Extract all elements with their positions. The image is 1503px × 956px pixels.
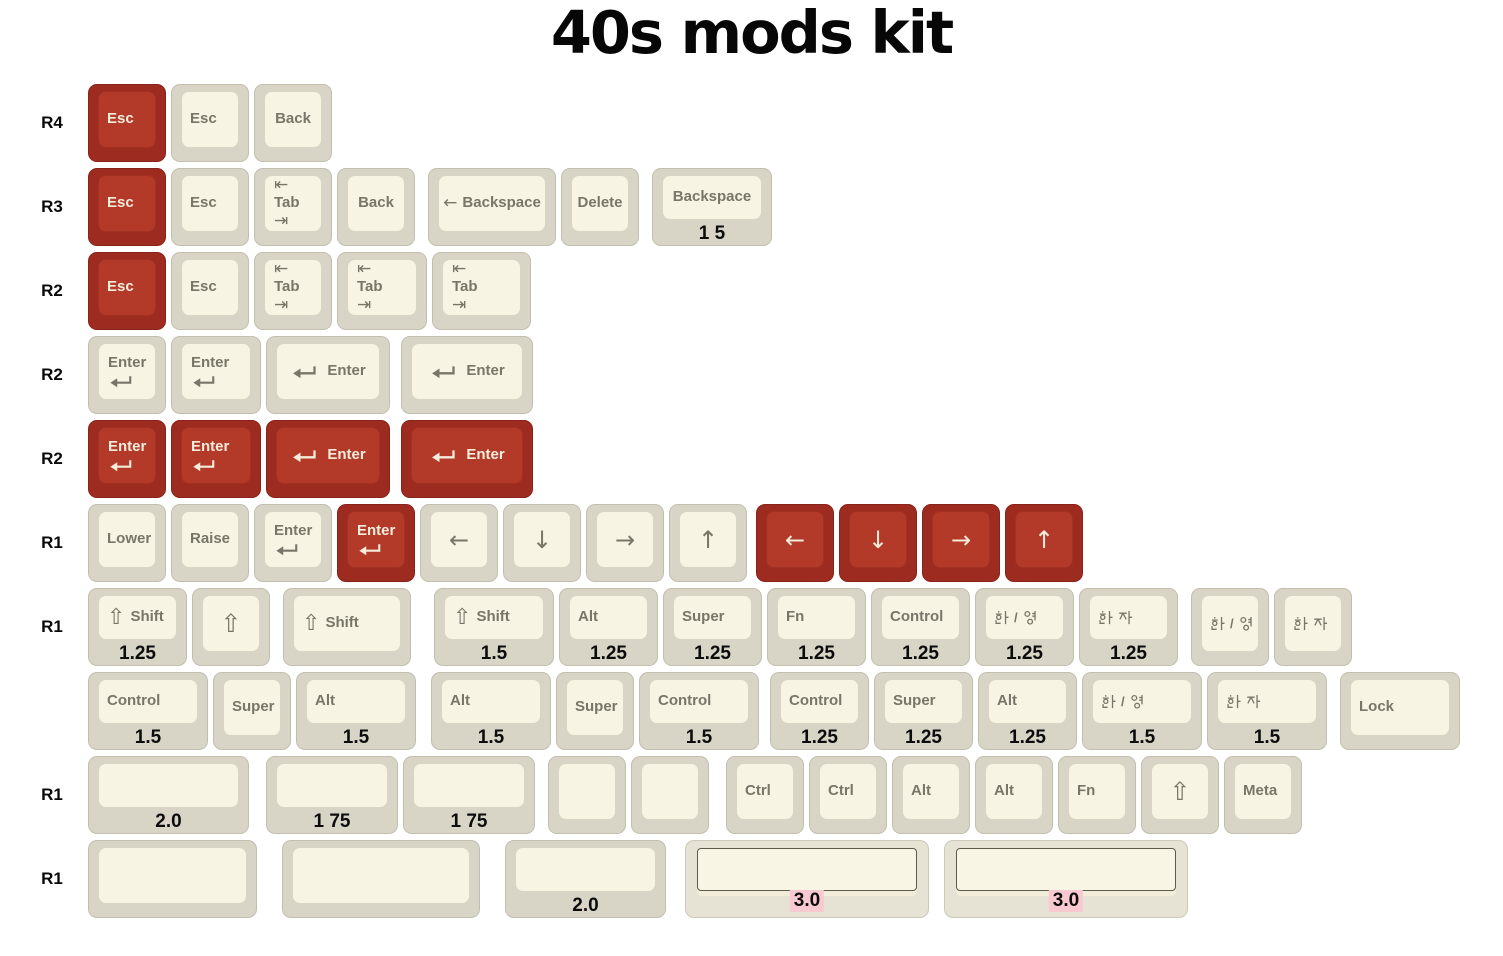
size-label: 3.0: [790, 890, 824, 912]
key-shift: ⇧Shift1.25: [88, 588, 187, 666]
keycap-top: Fn: [1068, 763, 1126, 820]
key-legend: Control: [658, 693, 711, 710]
keycap-top: Enter: [98, 343, 156, 400]
key-legend: Super: [575, 699, 618, 716]
key-legend: Esc: [107, 195, 134, 212]
size-label: 1.25: [89, 643, 186, 665]
key-alt: Alt1.5: [431, 672, 551, 750]
key-legend: Alt: [315, 693, 335, 710]
arrow-up-icon: ↑: [698, 528, 718, 552]
keycap-top: Ctrl: [819, 763, 877, 820]
key-legend: Esc: [190, 195, 217, 212]
keycap-top: ⇧Shift: [293, 595, 401, 652]
size-label: 1 75: [267, 811, 397, 833]
keycap-top: →: [932, 511, 990, 568]
keycap-top: ⇧Shift: [444, 595, 544, 640]
enter-arrow-icon: [191, 375, 216, 388]
row-label: R2: [26, 252, 78, 330]
keycap-top: Meta: [1234, 763, 1292, 820]
row-label: R1: [26, 504, 78, 582]
keycap-top: Super: [884, 679, 963, 724]
key-arrow-up: ↑: [669, 504, 747, 582]
arrow-left-icon: ←: [785, 528, 805, 552]
key-enter: Enter: [337, 504, 415, 582]
size-label: 1.25: [875, 727, 972, 749]
key-han-yeong: /1.25: [975, 588, 1074, 666]
key-legend: Enter: [327, 447, 365, 464]
keycap-top: ⇧Shift: [98, 595, 177, 640]
key-shift: ⇧: [192, 588, 270, 666]
key-legend: Super: [682, 609, 725, 626]
key-legend: Raise: [190, 531, 230, 548]
key-enter: Enter: [171, 336, 261, 414]
key-legend: Backspace: [673, 189, 751, 206]
key-legend: Tab: [357, 279, 383, 296]
shift-icon: ⇧: [221, 611, 242, 636]
key-alt: Alt: [975, 756, 1053, 834]
key-enter: Enter: [266, 420, 390, 498]
key-legend: Super: [893, 693, 936, 710]
keycap-top: ⇤Tab⇥: [442, 259, 521, 316]
hangul-han-glyph: [994, 610, 1009, 625]
key-control: Control1.25: [871, 588, 970, 666]
hangul-yeong-glyph: [1023, 610, 1038, 625]
key-meta: Meta: [1224, 756, 1302, 834]
key-legend: Alt: [911, 783, 931, 800]
hangul-yeong-glyph: [1130, 694, 1145, 709]
keycap-top: [98, 847, 247, 904]
tab-right-icon: ⇥: [274, 297, 288, 314]
key-legend: Backspace: [462, 195, 540, 212]
size-label: 1.5: [432, 727, 550, 749]
key-super: Super1.25: [874, 672, 973, 750]
key-legend: Super: [232, 699, 275, 716]
size-label: 1.25: [1080, 643, 1177, 665]
row-label: R3: [26, 168, 78, 246]
keycap-top: [1217, 679, 1317, 724]
row-label: R1: [26, 756, 78, 834]
enter-arrow-icon: [191, 459, 216, 472]
key-han-yeong: /1.5: [1082, 672, 1202, 750]
keycap-top: ⇤Tab⇥: [264, 175, 322, 232]
keycap-top: [1284, 595, 1342, 652]
key-enter: Enter: [266, 336, 390, 414]
keycap-top: Lower: [98, 511, 156, 568]
keycap-top: /: [985, 595, 1064, 640]
keycap-top: Alt: [985, 763, 1043, 820]
keycap-top: Esc: [181, 91, 239, 148]
size-label: 1 75: [404, 811, 534, 833]
key-legend: Lower: [107, 531, 151, 548]
key-shift: ⇧Shift: [283, 588, 411, 666]
slash-separator: /: [1121, 694, 1125, 709]
key-super: Super: [556, 672, 634, 750]
key-legend: Enter: [191, 439, 229, 456]
keycap-top: Esc: [181, 175, 239, 232]
size-label: 1.25: [768, 643, 865, 665]
key-ctrl: Ctrl: [809, 756, 887, 834]
key-backspace: Backspace1 5: [652, 168, 772, 246]
keycap-top: ↑: [1015, 511, 1073, 568]
key-legend: Esc: [190, 279, 217, 296]
key-shift: ⇧Shift1.5: [434, 588, 554, 666]
keycap-top: [515, 847, 656, 892]
key-esc: Esc: [171, 84, 249, 162]
size-label: 1 5: [653, 223, 771, 245]
keycap-top: Super: [673, 595, 752, 640]
size-label: 1.5: [1083, 727, 1201, 749]
key-esc: Esc: [88, 252, 166, 330]
keycap-top: Fn: [777, 595, 856, 640]
key-legend: Fn: [1077, 783, 1095, 800]
key-legend: Shift: [130, 609, 163, 626]
keycap-top: Enter: [264, 511, 322, 568]
shift-icon: ⇧: [453, 607, 471, 629]
key-legend: Control: [789, 693, 842, 710]
tab-left-icon: ⇤: [357, 261, 371, 278]
key-esc: Esc: [88, 84, 166, 162]
key-legend: Shift: [325, 615, 358, 632]
hangul-han-glyph: [1293, 616, 1308, 631]
key-arrow-right: →: [922, 504, 1000, 582]
key-enter: Enter: [88, 336, 166, 414]
tab-right-icon: ⇥: [274, 213, 288, 230]
key-legend: Enter: [466, 447, 504, 464]
keycap-top: ↓: [513, 511, 571, 568]
key-raise: Raise: [171, 504, 249, 582]
keycap-top: ⇧: [202, 595, 260, 652]
keycap-top: Control: [98, 679, 198, 724]
key-legend: Tab: [274, 279, 300, 296]
key-shift: ⇧: [1141, 756, 1219, 834]
enter-arrow-icon: [429, 449, 457, 463]
size-label: 2.0: [89, 811, 248, 833]
shift-icon: ⇧: [302, 613, 320, 635]
key-fn: Fn1.25: [767, 588, 866, 666]
keycap-top: Enter: [347, 511, 405, 568]
key-hanja: [1274, 588, 1352, 666]
keycap-top: Enter: [411, 427, 523, 484]
key-blank: 2.0: [88, 756, 249, 834]
keycap-top: Esc: [98, 91, 156, 148]
key-legend: Back: [358, 195, 394, 212]
keycap-top: Alt: [441, 679, 541, 724]
key-blank: [548, 756, 626, 834]
size-label: 1.25: [872, 643, 969, 665]
enter-arrow-icon: [357, 543, 382, 556]
keycap-top: ⇤Tab⇥: [264, 259, 322, 316]
hangul-ja-glyph: [1313, 616, 1328, 631]
size-label: 3.0: [1049, 890, 1083, 912]
row-label: R1: [26, 840, 78, 918]
tab-right-icon: ⇥: [452, 297, 466, 314]
row-label: R1: [26, 588, 78, 666]
size-label: 1.5: [435, 643, 553, 665]
enter-arrow-icon: [429, 365, 457, 379]
enter-arrow-icon: [290, 449, 318, 463]
tab-left-icon: ⇤: [274, 177, 288, 194]
keycap-top: ←: [430, 511, 488, 568]
key-han-yeong: /: [1191, 588, 1269, 666]
key-esc: Esc: [171, 252, 249, 330]
size-label: 1.5: [89, 727, 207, 749]
key-legend: Tab: [274, 195, 300, 212]
key-enter: Enter: [88, 420, 166, 498]
row-label: R2: [26, 336, 78, 414]
keycap-top: /: [1092, 679, 1192, 724]
key-control: Control1.5: [88, 672, 208, 750]
keycap-top: [956, 848, 1176, 891]
hangul-han-glyph: [1210, 616, 1225, 631]
keycap-top: [1089, 595, 1168, 640]
keycap-top: ↑: [679, 511, 737, 568]
shift-icon: ⇧: [1170, 779, 1191, 804]
size-label: 1.25: [771, 727, 868, 749]
key-blank: 2.0: [505, 840, 666, 918]
key-legend: Alt: [997, 693, 1017, 710]
key-esc: Esc: [171, 168, 249, 246]
keycap-top: Backspace: [662, 175, 762, 220]
size-label: 2.0: [506, 895, 665, 917]
key-legend: Alt: [994, 783, 1014, 800]
key-fn: Fn: [1058, 756, 1136, 834]
key-back: Back: [254, 84, 332, 162]
keycap-top: Enter: [411, 343, 523, 400]
key-blank: [88, 840, 257, 918]
key-legend: Enter: [108, 355, 146, 372]
enter-arrow-icon: [274, 543, 299, 556]
keycap-top: [641, 763, 699, 820]
hangul-han-glyph: [1101, 694, 1116, 709]
key-hanja: 1.5: [1207, 672, 1327, 750]
key-legend: Esc: [190, 111, 217, 128]
key-legend: Enter: [191, 355, 229, 372]
key-legend: Esc: [107, 111, 134, 128]
enter-arrow-icon: [108, 375, 133, 388]
key-ctrl: Ctrl: [726, 756, 804, 834]
arrow-right-icon: →: [615, 528, 635, 552]
keycap-top: Back: [347, 175, 405, 232]
key-control: Control1.25: [770, 672, 869, 750]
tab-left-icon: ⇤: [274, 261, 288, 278]
key-legend: Meta: [1243, 783, 1277, 800]
keycap-top: Esc: [181, 259, 239, 316]
keycap-top: Ctrl: [736, 763, 794, 820]
arrow-down-icon: ↓: [868, 528, 888, 552]
keycap-top: Enter: [276, 427, 380, 484]
keycap-top: Alt: [988, 679, 1067, 724]
size-label: 1.5: [1208, 727, 1326, 749]
keycap-top: Back: [264, 91, 322, 148]
slash-separator: /: [1014, 610, 1018, 625]
tab-left-icon: ⇤: [452, 261, 466, 278]
size-label: 1.25: [560, 643, 657, 665]
key-legend: Alt: [578, 609, 598, 626]
key-hanja: 1.25: [1079, 588, 1178, 666]
key-enter: Enter: [401, 336, 533, 414]
keycap-top: Raise: [181, 511, 239, 568]
key-lock: Lock: [1340, 672, 1460, 750]
keycap-top: Alt: [902, 763, 960, 820]
key-tab: ⇤Tab⇥: [254, 168, 332, 246]
arrow-up-icon: ↑: [1034, 528, 1054, 552]
keycap-top: [697, 848, 917, 891]
key-spacebar: 3.0: [944, 840, 1188, 918]
keycap-kit-board: 40s mods kit R4EscEscBackR3EscEsc⇤Tab⇥Ba…: [0, 0, 1503, 956]
keycap-top: Super: [566, 679, 624, 736]
backspace-arrow-icon: ←: [443, 195, 457, 212]
key-alt: Alt1.5: [296, 672, 416, 750]
key-legend: Enter: [327, 363, 365, 380]
key-enter: Enter: [401, 420, 533, 498]
key-spacebar: 3.0: [685, 840, 929, 918]
key-control: Control1.5: [639, 672, 759, 750]
hangul-han-glyph: [1226, 694, 1241, 709]
key-arrow-left: ←: [756, 504, 834, 582]
size-label: 1.5: [640, 727, 758, 749]
key-legend: Enter: [108, 439, 146, 456]
hangul-ja-glyph: [1118, 610, 1133, 625]
enter-arrow-icon: [108, 459, 133, 472]
key-legend: Control: [890, 609, 943, 626]
key-legend: Shift: [476, 609, 509, 626]
keycap-top: Esc: [98, 259, 156, 316]
key-legend: Lock: [1359, 699, 1394, 716]
key-legend: Enter: [274, 523, 312, 540]
key-blank: [282, 840, 480, 918]
shift-icon: ⇧: [107, 607, 125, 629]
key-legend: Back: [275, 111, 311, 128]
key-blank: 1 75: [403, 756, 535, 834]
keycap-top: Control: [649, 679, 749, 724]
key-legend: Tab: [452, 279, 478, 296]
keycap-top: ⇤Tab⇥: [347, 259, 417, 316]
key-legend: Fn: [786, 609, 804, 626]
arrow-down-icon: ↓: [532, 528, 552, 552]
keycap-top: ⇧: [1151, 763, 1209, 820]
keycap-top: [276, 763, 388, 808]
key-arrow-left: ←: [420, 504, 498, 582]
key-arrow-right: →: [586, 504, 664, 582]
key-legend: Delete: [577, 195, 622, 212]
key-legend: Control: [107, 693, 160, 710]
key-alt: Alt: [892, 756, 970, 834]
key-super: Super1.25: [663, 588, 762, 666]
key-alt: Alt1.25: [978, 672, 1077, 750]
key-legend: Enter: [466, 363, 504, 380]
hangul-han-glyph: [1098, 610, 1113, 625]
key-blank: [631, 756, 709, 834]
keycap-top: Enter: [181, 343, 251, 400]
key-legend: Ctrl: [828, 783, 854, 800]
keycap-top: Enter: [276, 343, 380, 400]
keycap-top: [98, 763, 239, 808]
keycap-top: ←Backspace: [438, 175, 546, 232]
key-lower: Lower: [88, 504, 166, 582]
size-label: 1.25: [664, 643, 761, 665]
keycap-top: [413, 763, 525, 808]
hangul-yeong-glyph: [1239, 616, 1254, 631]
keycap-top: ←: [766, 511, 824, 568]
key-tab: ⇤Tab⇥: [254, 252, 332, 330]
page-title: 40s mods kit: [0, 0, 1503, 67]
key-legend: Esc: [107, 279, 134, 296]
keycap-top: [292, 847, 470, 904]
key-legend: Ctrl: [745, 783, 771, 800]
keycap-top: Enter: [181, 427, 251, 484]
key-back: Back: [337, 168, 415, 246]
key-backspace: ←Backspace: [428, 168, 556, 246]
keycap-top: Super: [223, 679, 281, 736]
keycap-top: Enter: [98, 427, 156, 484]
key-blank: 1 75: [266, 756, 398, 834]
slash-separator: /: [1230, 616, 1234, 631]
size-label: 1.25: [979, 727, 1076, 749]
arrow-left-icon: ←: [449, 528, 469, 552]
key-alt: Alt1.25: [559, 588, 658, 666]
arrow-right-icon: →: [951, 528, 971, 552]
key-arrow-down: ↓: [839, 504, 917, 582]
key-tab: ⇤Tab⇥: [432, 252, 531, 330]
key-enter: Enter: [254, 504, 332, 582]
keycap-top: Alt: [569, 595, 648, 640]
key-tab: ⇤Tab⇥: [337, 252, 427, 330]
keycap-top: Delete: [571, 175, 629, 232]
key-legend: Enter: [357, 523, 395, 540]
key-enter: Enter: [171, 420, 261, 498]
key-esc: Esc: [88, 168, 166, 246]
tab-right-icon: ⇥: [357, 297, 371, 314]
keycap-top: /: [1201, 595, 1259, 652]
key-super: Super: [213, 672, 291, 750]
key-arrow-up: ↑: [1005, 504, 1083, 582]
hangul-ja-glyph: [1246, 694, 1261, 709]
row-label: R2: [26, 420, 78, 498]
keycap-top: Alt: [306, 679, 406, 724]
keycap-top: ↓: [849, 511, 907, 568]
keycap-top: Esc: [98, 175, 156, 232]
row-label: R4: [26, 84, 78, 162]
keycap-top: [558, 763, 616, 820]
keycap-top: →: [596, 511, 654, 568]
key-arrow-down: ↓: [503, 504, 581, 582]
keycap-top: Control: [780, 679, 859, 724]
size-label: 1.5: [297, 727, 415, 749]
size-label: 1.25: [976, 643, 1073, 665]
key-delete: Delete: [561, 168, 639, 246]
enter-arrow-icon: [290, 365, 318, 379]
keycap-top: Control: [881, 595, 960, 640]
keycap-top: Lock: [1350, 679, 1450, 736]
key-legend: Alt: [450, 693, 470, 710]
